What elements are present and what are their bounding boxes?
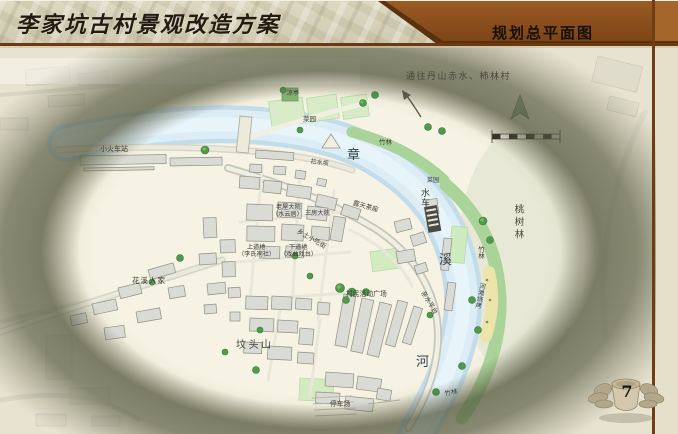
right-vertical-rule bbox=[652, 0, 655, 434]
right-margin-strip bbox=[656, 0, 678, 434]
header-divider-line bbox=[0, 43, 678, 46]
slide-header: 李家坑古村景观改造方案 规划总平面图 bbox=[0, 0, 678, 44]
header-band-right bbox=[655, 1, 678, 41]
page-title: 李家坑古村景观改造方案 bbox=[16, 7, 280, 39]
page-number-emblem: 7 bbox=[588, 370, 666, 426]
section-label: 规划总平面图 bbox=[492, 22, 594, 43]
page-number: 7 bbox=[619, 382, 635, 401]
master-plan-map bbox=[0, 0, 678, 434]
slide: 通往丹山赤水、柿林村 小火车站 凉亭 菜园 竹林 拦水坝 章 水车 菜园 溪 河… bbox=[0, 0, 678, 434]
vignette bbox=[0, 1, 678, 434]
